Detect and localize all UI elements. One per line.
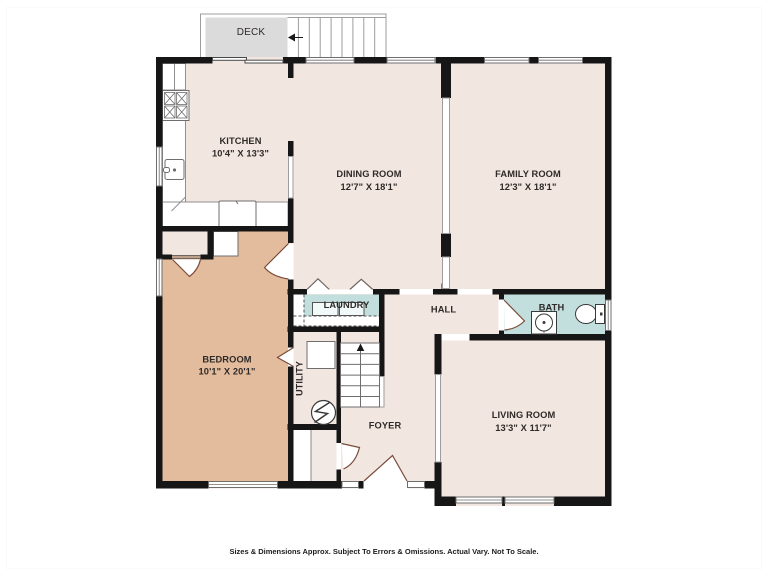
svg-text:Sizes & Dimensions Approx. Sub: Sizes & Dimensions Approx. Subject To Er…: [229, 547, 538, 556]
svg-text:BEDROOM: BEDROOM: [202, 355, 251, 365]
svg-text:HALL: HALL: [431, 305, 456, 315]
svg-text:10'1" X 20'1": 10'1" X 20'1": [199, 367, 256, 377]
svg-text:FOYER: FOYER: [369, 421, 402, 431]
svg-text:KITCHEN: KITCHEN: [219, 136, 261, 146]
svg-text:13'3" X 11'7": 13'3" X 11'7": [495, 423, 551, 433]
svg-text:12'3" X 18'1": 12'3" X 18'1": [500, 182, 557, 192]
svg-text:DINING ROOM: DINING ROOM: [336, 169, 401, 179]
svg-text:12'7" X 18'1": 12'7" X 18'1": [341, 182, 398, 192]
svg-text:BATH: BATH: [539, 303, 565, 313]
svg-text:FAMILY ROOM: FAMILY ROOM: [495, 169, 561, 179]
svg-text:LAUNDRY: LAUNDRY: [324, 300, 371, 310]
svg-text:LIVING ROOM: LIVING ROOM: [492, 410, 556, 420]
svg-text:UTILITY: UTILITY: [295, 361, 305, 396]
svg-text:DECK: DECK: [237, 27, 266, 38]
svg-text:10'4" X 13'3": 10'4" X 13'3": [212, 149, 269, 159]
